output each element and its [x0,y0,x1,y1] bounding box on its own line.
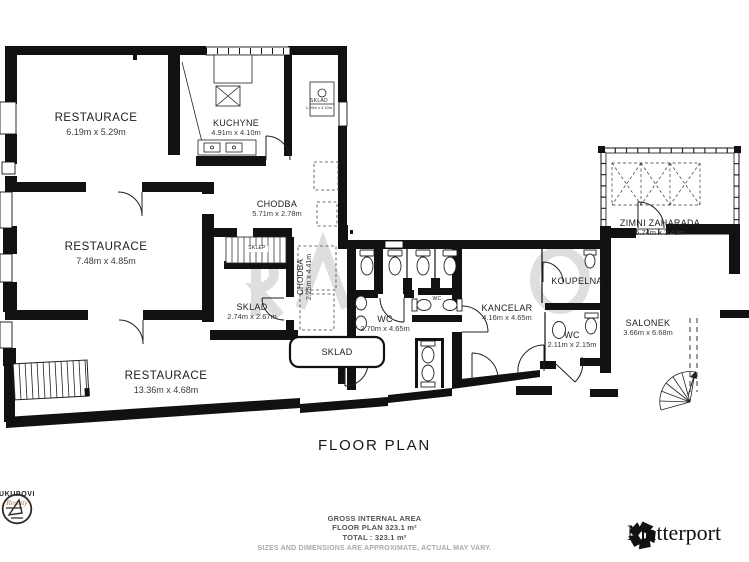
room-sklad-2-label: SKLAD 2.74m x 2.67m [227,302,277,322]
winter-garden-lattice [612,163,700,205]
room-wc-2-label: WC [431,297,444,303]
room-restaurace-2-label: RESTAURACE 7.48m x 4.85m [65,241,148,267]
room-sklad-3-label: SKLAD [321,347,352,357]
total-area-value: TOTAL : 323.1 m² [258,533,492,542]
room-zimni-zaharada-label: ZIMNI ZAHARADA 5.74m x 3.43m [620,218,700,238]
room-wc-3-label: WC 2.11m x 2.15m [547,330,596,350]
page-title: FLOOR PLAN [318,437,431,454]
room-chodba-label: CHODBA 5.71m x 2.78m [252,199,302,219]
main-staircase [13,360,90,400]
room-kancelar-label: KANCELAR 4.16m x 4.65m [482,303,533,323]
room-restaurace-1-label: RESTAURACE 6.19m x 5.29m [55,112,138,138]
matterport-logo: Matterport [627,520,721,546]
room-sklep-label: SKLEP [246,246,268,252]
room-kuchyne-label: KUCHYNE 4.91m x 4.10m [211,118,261,138]
agency-logo-icon [0,489,48,529]
floor-plan-area-value: FLOOR PLAN 323.1 m² [258,523,492,532]
gross-internal-area-label: GROSS INTERNAL AREA [258,514,492,523]
floor-plan-page: RESTAURACE 6.19m x 5.29m KUCHYNE 4.91m x… [0,0,749,562]
disclaimer-text: SIZES AND DIMENSIONS ARE APPROXIMATE, AC… [258,545,492,554]
spiral-staircase [660,371,697,410]
footer-area-summary: GROSS INTERNAL AREA FLOOR PLAN 323.1 m² … [258,514,492,554]
room-sklad-top-label: SKLAD 1.99m x 4.10m [306,99,332,110]
room-koupelna-label: KOUPELNA [551,276,602,286]
room-salonek-label: SALONEK 3.66m x 6.68m [623,318,673,338]
agency-logo: UKUPOVI Reality [0,489,48,507]
room-chodba-2-label: CHODBA 2.25m x 4.41m [296,254,314,300]
matterport-pinwheel-icon [627,520,658,551]
room-wc-1-label: WC 2.70m x 4.65m [360,314,410,334]
room-restaurace-3-label: RESTAURACE 13.36m x 4.68m [125,370,208,396]
